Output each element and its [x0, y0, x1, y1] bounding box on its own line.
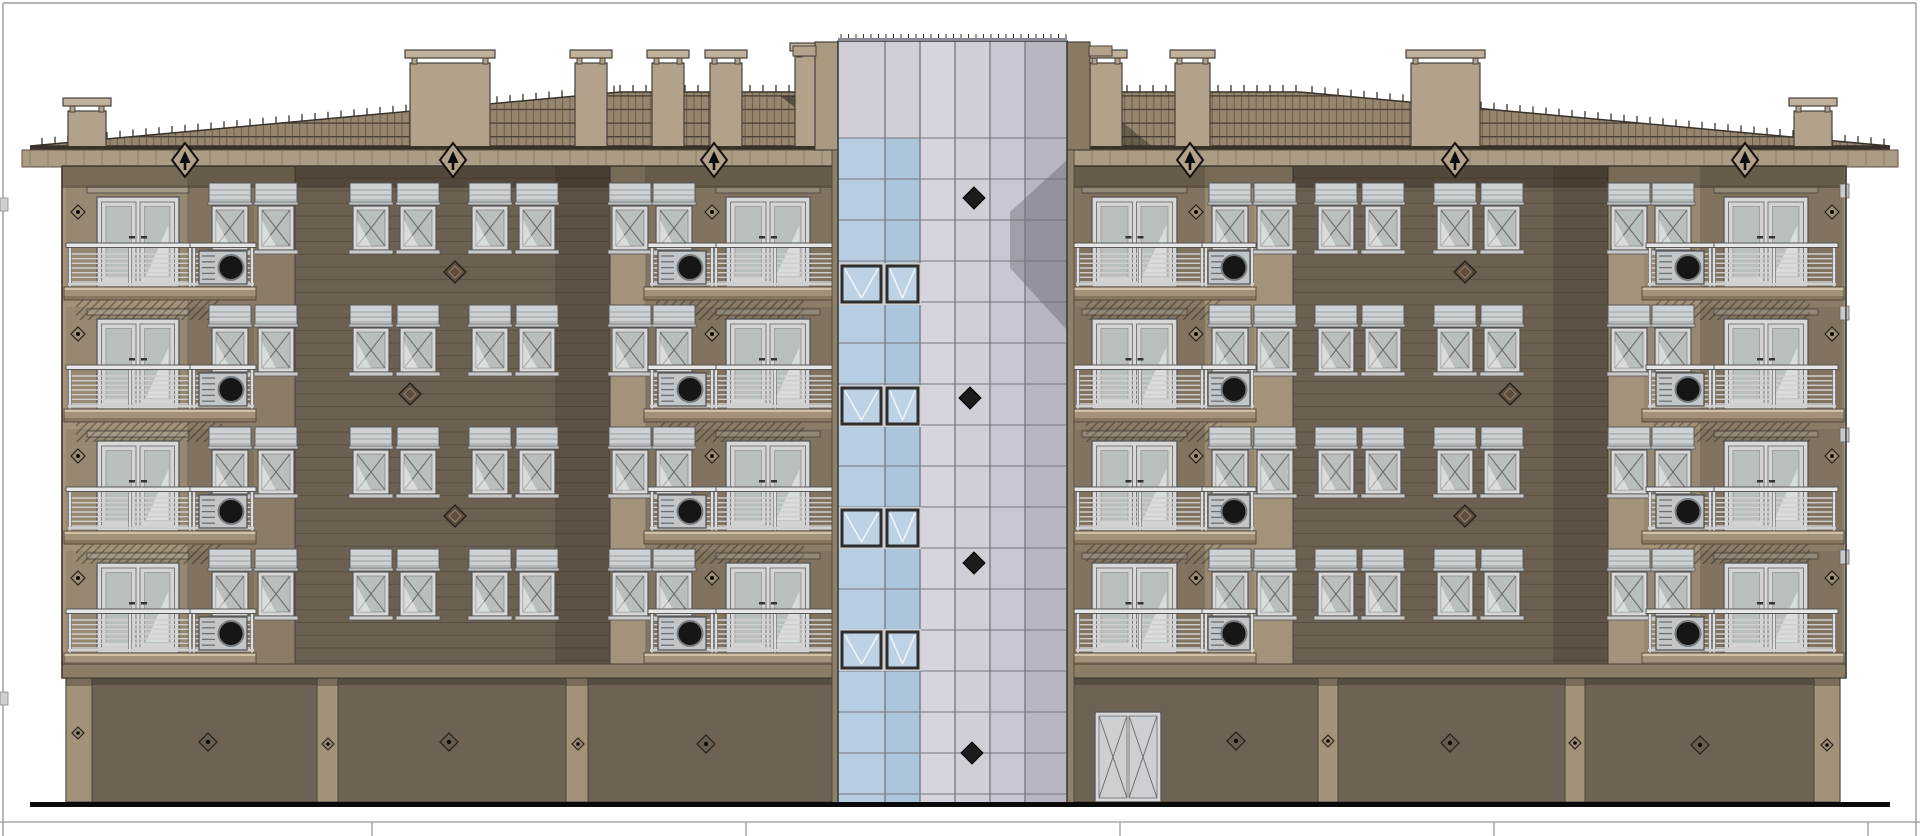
railing-post [189, 489, 192, 531]
railing-post [1833, 611, 1836, 653]
window-with-shutter-box [515, 549, 559, 620]
railing-post [189, 611, 192, 653]
window-with-shutter-box [608, 549, 652, 620]
door-lintel [716, 309, 820, 315]
door-handle [771, 602, 777, 605]
window-with-shutter-box [349, 549, 393, 620]
ac-fan [1676, 377, 1701, 402]
tower-awning-windows [840, 630, 920, 670]
door-glass [1733, 451, 1760, 522]
railing-post [69, 489, 72, 531]
door-glass [1101, 451, 1128, 522]
window-with-shutter-box [1361, 305, 1405, 376]
chimney-cap [1406, 50, 1485, 58]
door-lintel [1082, 431, 1187, 437]
railing-top-rail [712, 365, 838, 370]
window-sill [254, 494, 298, 498]
ac-fan [1222, 255, 1247, 280]
railing-top-rail [1074, 365, 1206, 370]
door-glass [106, 207, 132, 278]
railing-top-rail [1202, 365, 1256, 370]
door-handle [141, 480, 147, 483]
door-handle [759, 236, 765, 239]
tower-flank-wall [815, 42, 838, 150]
chimney [1170, 50, 1215, 150]
door-handle [129, 358, 135, 361]
side-return-tab [1840, 428, 1849, 442]
ac-unit [1656, 495, 1704, 528]
door-glass [1101, 573, 1128, 644]
window-sill [1314, 372, 1358, 376]
window-with-shutter-box [608, 427, 652, 498]
ground-line [30, 802, 1890, 807]
window-with-shutter-box [1480, 305, 1524, 376]
chimney [647, 50, 689, 150]
balcony-slab [1642, 287, 1844, 300]
window-sill [254, 372, 298, 376]
drawing-sheet [0, 0, 1920, 836]
railing-post [1833, 489, 1836, 531]
door-glass [1733, 329, 1760, 400]
railing-post [189, 245, 192, 287]
window-sill [1433, 494, 1477, 498]
door-glass [735, 329, 762, 400]
window-with-shutter-box [1314, 549, 1358, 620]
balcony-slab [1074, 287, 1256, 300]
facade-bay [1607, 305, 1844, 442]
window-with-shutter-box [468, 549, 512, 620]
railing-post [1709, 367, 1712, 409]
door-glass [106, 451, 132, 522]
stair-glazing [838, 138, 885, 806]
railing-top-rail [1202, 487, 1256, 492]
balcony-slab [644, 531, 838, 544]
railing-post [1077, 611, 1080, 653]
railing-post [1709, 489, 1712, 531]
chimney-cap [705, 50, 747, 58]
window-sill [1361, 494, 1405, 498]
ac-fan [219, 499, 244, 524]
railing-post [1713, 611, 1716, 653]
railing-top-rail [1646, 487, 1714, 492]
sheet-edge-tab [0, 198, 8, 211]
window-with-shutter-box [1361, 183, 1405, 254]
door-handle [1757, 480, 1763, 483]
railing-top-rail [1710, 487, 1838, 492]
window-with-shutter-box [1607, 427, 1651, 498]
railing-top-rail [1646, 243, 1714, 248]
window-sill [1314, 494, 1358, 498]
ac-fan [1222, 499, 1247, 524]
window-with-shutter-box [468, 305, 512, 376]
window-sill [608, 372, 652, 376]
railing-post [1251, 245, 1254, 287]
window-with-shutter-box [396, 427, 440, 498]
railing-post [711, 367, 714, 409]
railing-top-rail [66, 365, 194, 370]
ac-unit [199, 251, 247, 284]
door-lintel [716, 431, 820, 437]
window-sill [608, 616, 652, 620]
entrance-door [1095, 712, 1161, 802]
railing-post [193, 611, 196, 653]
tower-awning-windows [840, 508, 920, 548]
window-with-shutter-box [1253, 305, 1297, 376]
door-handle [1769, 236, 1775, 239]
ac-unit [199, 373, 247, 406]
door-lintel [87, 309, 189, 315]
window-sill [396, 250, 440, 254]
door-handle [1138, 358, 1144, 361]
window-with-shutter-box [1433, 305, 1477, 376]
railing-post [1139, 245, 1142, 287]
railing-post [251, 489, 254, 531]
ac-unit [658, 495, 706, 528]
window-sill [1607, 494, 1651, 498]
tower-awning-windows [840, 386, 920, 426]
facade-bay [1607, 427, 1844, 564]
railing-top-rail [1710, 609, 1838, 614]
door-lintel [1714, 431, 1818, 437]
ac-fan [1676, 621, 1701, 646]
door-handle [1769, 480, 1775, 483]
window-with-shutter-box [1361, 549, 1405, 620]
window-sill [515, 494, 559, 498]
window-sill [349, 372, 393, 376]
railing-post [1077, 367, 1080, 409]
railing-post [1201, 611, 1204, 653]
railing-post [1773, 611, 1776, 653]
railing-top-rail [648, 243, 716, 248]
railing-top-rail [1202, 609, 1256, 614]
ac-fan [219, 377, 244, 402]
window-sill [515, 372, 559, 376]
railing-top-rail [648, 487, 716, 492]
window-sill [1480, 250, 1524, 254]
railing-post [1139, 367, 1142, 409]
railing-top-rail [66, 243, 194, 248]
door-lintel [716, 553, 820, 559]
railing-post [711, 489, 714, 531]
window-sill [1607, 250, 1651, 254]
window-sill [1314, 250, 1358, 254]
door-handle [1138, 480, 1144, 483]
door-glass [1733, 573, 1760, 644]
window-sill [254, 250, 298, 254]
railing-post [774, 489, 777, 531]
window-sill [608, 250, 652, 254]
railing-top-rail [712, 487, 838, 492]
window-sill [1480, 616, 1524, 620]
window-with-shutter-box [608, 305, 652, 376]
stair-glazing [885, 138, 920, 806]
window-sill [349, 616, 393, 620]
window-sill [254, 616, 298, 620]
railing-post [774, 367, 777, 409]
door-lintel [1714, 309, 1818, 315]
railing-post [1205, 245, 1208, 287]
railing-post [1709, 245, 1712, 287]
railing-post [251, 611, 254, 653]
tower-flank-wall [1067, 42, 1090, 150]
railing-post [1649, 489, 1652, 531]
door-glass [1101, 207, 1128, 278]
window-sill [1253, 250, 1297, 254]
window-with-shutter-box [254, 427, 298, 498]
window-sill [608, 494, 652, 498]
window-sill [468, 616, 512, 620]
window-sill [396, 616, 440, 620]
door-handle [141, 358, 147, 361]
railing-post [1251, 611, 1254, 653]
railing-post [1833, 367, 1836, 409]
door-lintel [1082, 309, 1187, 315]
railing-top-rail [1074, 609, 1206, 614]
window-with-shutter-box [254, 183, 298, 254]
railing-post [1077, 245, 1080, 287]
window-with-shutter-box [254, 549, 298, 620]
window-with-shutter-box [515, 305, 559, 376]
window-with-shutter-box [349, 305, 393, 376]
railing-post [193, 245, 196, 287]
door-glass [106, 573, 132, 644]
window-with-shutter-box [608, 183, 652, 254]
railing-post [711, 611, 714, 653]
stair-tower [793, 34, 1112, 806]
railing-top-rail [190, 487, 256, 492]
ac-fan [1222, 621, 1247, 646]
window-sill [1361, 250, 1405, 254]
elevation-drawing [0, 0, 1920, 836]
railing-post [193, 367, 196, 409]
ac-unit [1208, 373, 1250, 406]
window-sill [396, 494, 440, 498]
window-with-shutter-box [1480, 427, 1524, 498]
door-handle [1126, 480, 1132, 483]
chimney-cap [63, 98, 111, 106]
railing-post [251, 245, 254, 287]
window-sill [396, 372, 440, 376]
window-with-shutter-box [1314, 305, 1358, 376]
railing-post [193, 489, 196, 531]
window-with-shutter-box [1253, 183, 1297, 254]
door-lintel [87, 431, 189, 437]
window-sill [1433, 250, 1477, 254]
door-handle [1769, 358, 1775, 361]
ac-fan [678, 377, 703, 402]
railing-post [711, 245, 714, 287]
railing-top-rail [190, 243, 256, 248]
window-sill [515, 616, 559, 620]
window-sill [1433, 616, 1477, 620]
railing-post [774, 611, 777, 653]
side-return-tab [1840, 184, 1849, 198]
railing-post [129, 611, 132, 653]
door-handle [129, 236, 135, 239]
window-sill [1314, 616, 1358, 620]
railing-post [1205, 367, 1208, 409]
railing-post [1139, 489, 1142, 531]
lap-siding-section [295, 166, 610, 664]
window-sill [468, 494, 512, 498]
railing-post [1205, 489, 1208, 531]
railing-post [1201, 489, 1204, 531]
ac-fan [678, 621, 703, 646]
railing-post [1139, 611, 1142, 653]
railing-post [1773, 367, 1776, 409]
railing-top-rail [1074, 243, 1206, 248]
door-handle [771, 480, 777, 483]
window-sill [1361, 616, 1405, 620]
chimney-cap [1789, 98, 1837, 106]
door-glass [1733, 207, 1760, 278]
ac-fan [1676, 255, 1701, 280]
door-handle [759, 480, 765, 483]
window-with-shutter-box [1607, 305, 1651, 376]
door-handle [1138, 602, 1144, 605]
window-with-shutter-box [1314, 427, 1358, 498]
balcony-slab [1642, 409, 1844, 422]
door-lintel [716, 187, 820, 193]
railing-top-rail [712, 243, 838, 248]
door-handle [759, 602, 765, 605]
door-handle [1757, 236, 1763, 239]
facade-bay [1607, 183, 1844, 320]
balcony-slab [1074, 409, 1256, 422]
door-handle [1126, 602, 1132, 605]
railing-top-rail [1646, 609, 1714, 614]
tower-flank-cap [793, 46, 816, 56]
ac-unit [1656, 617, 1704, 650]
ac-fan [1222, 377, 1247, 402]
railing-post [715, 245, 718, 287]
tower-flank-cap [1089, 46, 1112, 56]
window-sill [349, 494, 393, 498]
railing-post [1709, 611, 1712, 653]
chimney [405, 50, 495, 150]
window-with-shutter-box [1253, 427, 1297, 498]
railing-post [1077, 489, 1080, 531]
railing-top-rail [1710, 365, 1838, 370]
railing-post [1773, 489, 1776, 531]
door-handle [141, 236, 147, 239]
garage-pilaster [66, 678, 92, 802]
railing-post [651, 245, 654, 287]
door-handle [1126, 358, 1132, 361]
window-sill [1480, 372, 1524, 376]
railing-post [129, 367, 132, 409]
railing-top-rail [190, 609, 256, 614]
railing-post [1713, 245, 1716, 287]
door-lintel [1714, 553, 1818, 559]
door-lintel [1714, 187, 1818, 193]
tower-parapet [838, 38, 1067, 41]
railing-post [1713, 489, 1716, 531]
door-glass [1101, 329, 1128, 400]
ac-unit [1208, 617, 1250, 650]
railing-top-rail [648, 365, 716, 370]
window-with-shutter-box [468, 427, 512, 498]
ac-fan [678, 499, 703, 524]
chimney-cap [647, 50, 689, 58]
railing-post [129, 489, 132, 531]
railing-top-rail [1710, 243, 1838, 248]
railing-post [1205, 611, 1208, 653]
window-sill [1433, 372, 1477, 376]
railing-post [1713, 367, 1716, 409]
window-with-shutter-box [1607, 183, 1651, 254]
door-lintel [87, 187, 189, 193]
chimney-cap [570, 50, 612, 58]
ac-fan [219, 255, 244, 280]
window-sill [1253, 616, 1297, 620]
window-with-shutter-box [1314, 183, 1358, 254]
balcony-slab [64, 287, 256, 300]
ac-unit [1208, 251, 1250, 284]
window-with-shutter-box [1433, 183, 1477, 254]
window-sill [1607, 372, 1651, 376]
window-with-shutter-box [515, 183, 559, 254]
railing-post [651, 611, 654, 653]
door-handle [129, 602, 135, 605]
window-sill [515, 250, 559, 254]
tower-awning-windows [840, 264, 920, 304]
door-handle [771, 358, 777, 361]
ac-fan [1676, 499, 1701, 524]
ac-unit [199, 617, 247, 650]
balcony-slab [644, 287, 838, 300]
window-with-shutter-box [1607, 549, 1651, 620]
ac-unit [658, 617, 706, 650]
window-sill [468, 250, 512, 254]
railing-post [69, 245, 72, 287]
railing-post [251, 367, 254, 409]
window-with-shutter-box [396, 183, 440, 254]
door-glass [735, 207, 762, 278]
window-with-shutter-box [254, 305, 298, 376]
railing-post [774, 245, 777, 287]
railing-post [1649, 367, 1652, 409]
balcony-slab [64, 409, 256, 422]
balcony-slab [64, 531, 256, 544]
railing-post [651, 367, 654, 409]
railing-post [1773, 245, 1776, 287]
side-return-tab [1840, 550, 1849, 564]
window-sill [468, 372, 512, 376]
side-return-tab [1840, 306, 1849, 320]
railing-post [1833, 245, 1836, 287]
chimney [570, 50, 612, 150]
ac-unit [1656, 373, 1704, 406]
window-with-shutter-box [349, 183, 393, 254]
railing-top-rail [1646, 365, 1714, 370]
railing-post [1251, 489, 1254, 531]
railing-post [715, 611, 718, 653]
window-with-shutter-box [396, 305, 440, 376]
railing-post [715, 367, 718, 409]
door-handle [141, 602, 147, 605]
window-sill [1253, 372, 1297, 376]
ac-unit [658, 251, 706, 284]
railing-post [1201, 367, 1204, 409]
ac-fan [219, 621, 244, 646]
railing-post [1649, 611, 1652, 653]
ac-unit [199, 495, 247, 528]
railing-top-rail [66, 609, 194, 614]
door-lintel [1082, 187, 1187, 193]
balcony-slab [1074, 531, 1256, 544]
door-handle [1757, 602, 1763, 605]
